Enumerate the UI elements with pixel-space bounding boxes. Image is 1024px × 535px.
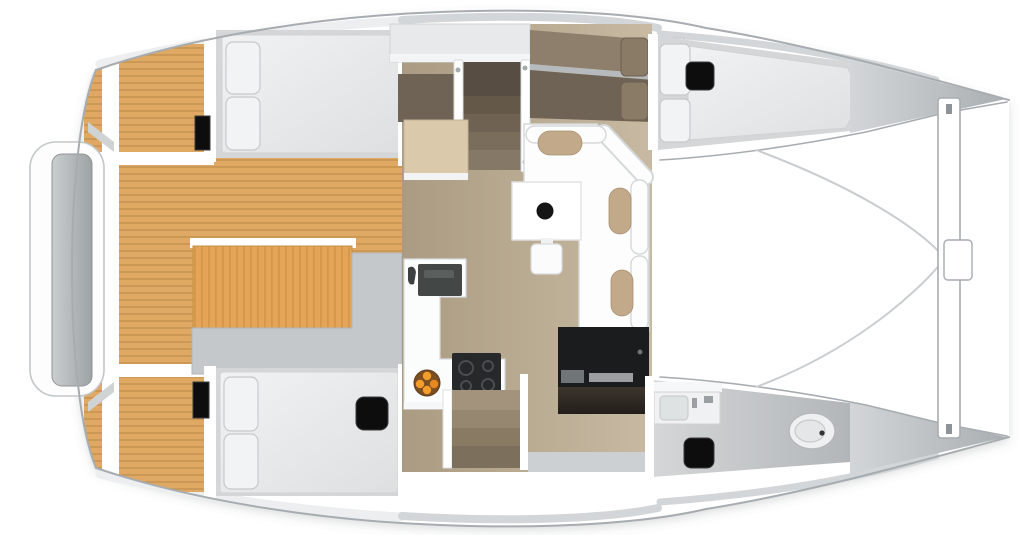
forward-berth-hatch (686, 62, 714, 90)
port-aft-cabin (195, 26, 410, 166)
crossbeam-end-bottom (946, 424, 952, 434)
bathroom-hatch (684, 438, 714, 468)
port-aft-pillow-1 (226, 42, 260, 94)
stb-step-2 (452, 410, 520, 428)
stb-step-4 (452, 446, 520, 468)
floor-plan-canvas (0, 0, 1024, 535)
fruit-4 (423, 386, 431, 394)
fridge-handle-2 (589, 373, 633, 382)
port-aft-pillow-2 (226, 97, 260, 150)
bathroom-sink-basin (660, 396, 688, 420)
bathroom-wall (645, 376, 654, 478)
toilet-flush (819, 430, 824, 435)
galley-fridge-unit (558, 327, 649, 414)
starboard-aft-pillow-1 (224, 377, 258, 431)
galley-sink (418, 264, 462, 296)
starboard-aft-cabin (193, 364, 410, 498)
sofa-cushion-2 (609, 188, 631, 234)
port-step-2 (463, 114, 521, 132)
chart-table (404, 120, 468, 178)
port-step-4 (463, 150, 521, 170)
port-step-1 (463, 96, 521, 114)
bathroom-faucet-2 (704, 396, 713, 403)
bathroom-sink-back (652, 382, 722, 392)
stb-step-3 (452, 428, 520, 446)
fruit-plate (414, 370, 440, 396)
step-partition (520, 374, 528, 470)
step-stringer (443, 390, 452, 468)
fridge-lower-band (558, 387, 649, 414)
port-aft-entry (195, 116, 210, 150)
starboard-aft-entry (193, 382, 209, 418)
settee-cushion-1 (621, 38, 648, 76)
sofa-cushion-3 (611, 270, 633, 316)
starboard-aft-pillow-2 (224, 434, 258, 489)
forward-pillow-2 (660, 99, 690, 142)
port-step-3 (463, 132, 521, 150)
fridge-knob (638, 350, 643, 355)
sofa-bolster-right-2 (631, 256, 648, 330)
port-companionway-steps (463, 62, 521, 170)
starboard-aft-hatch (356, 397, 388, 430)
hull-step-band (528, 452, 652, 472)
forward-cabin-wall (648, 34, 658, 150)
port-steps-landing (463, 62, 521, 96)
fridge-handle-1 (561, 370, 584, 383)
fruit-2 (416, 380, 424, 388)
hinge-dot-1 (456, 68, 461, 73)
cockpit-table (193, 246, 352, 328)
fruit-1 (423, 372, 431, 380)
port-settee-panel (398, 74, 454, 122)
bathroom-faucet-1 (692, 398, 697, 408)
catamaran-floor-plan (0, 0, 1024, 535)
galley-sink-basin (424, 270, 454, 278)
bowsprit-fitting (944, 240, 972, 280)
crossbeam-end-top (946, 104, 952, 114)
sofa-cushion-1 (538, 131, 582, 155)
stb-step-1 (452, 390, 520, 410)
chart-table-edge (404, 173, 468, 180)
forward-settee (530, 30, 653, 122)
galley-cooktop (452, 353, 501, 396)
fruit-3 (430, 380, 438, 388)
sofa-bolster-right-1 (631, 180, 648, 254)
salon-table-bowl (537, 203, 554, 220)
salon-stool (531, 244, 562, 274)
settee-cushion-2 (621, 82, 648, 120)
hinge-dot-3 (523, 66, 528, 71)
